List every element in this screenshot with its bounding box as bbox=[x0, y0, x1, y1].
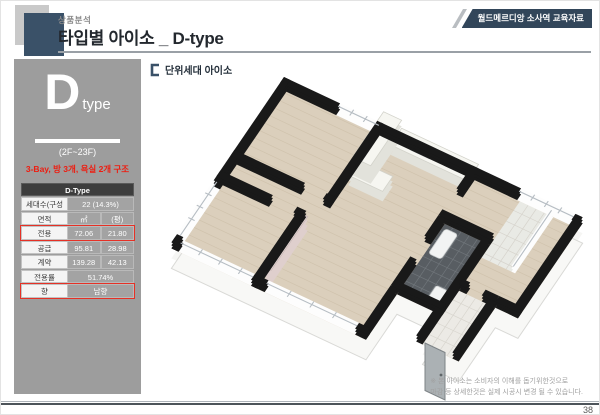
row-value: 남향 bbox=[68, 284, 134, 298]
type-word: type bbox=[82, 96, 110, 113]
table-row: 면적 ㎡ (평) bbox=[21, 212, 134, 226]
row-value: (평) bbox=[101, 212, 135, 226]
table-row: 세대수(구성비) 22 (14.3%) bbox=[21, 197, 134, 211]
unit-structure-note: 3-Bay, 방 3개, 욕실 2개 구조 bbox=[14, 163, 141, 175]
footer-rule-dark bbox=[1, 403, 599, 405]
unit-isometric-floor-plan bbox=[141, 59, 596, 406]
unit-info-table: D-Type 세대수(구성비) 22 (14.3%) 면적 ㎡ (평) 전용 7… bbox=[21, 183, 134, 299]
row-value: 51.74% bbox=[68, 270, 134, 284]
type-letter: D bbox=[44, 64, 80, 120]
footer-rule-light bbox=[1, 401, 599, 402]
type-summary-panel: Dtype (2F~23F) 3-Bay, 방 3개, 욕실 2개 구조 D-T… bbox=[14, 59, 141, 394]
door-knob bbox=[440, 374, 443, 377]
table-row: 계약 139.28 42.13 bbox=[21, 255, 134, 269]
table-row: 공급 95.81 28.98 bbox=[21, 241, 134, 255]
row-value: 22 (14.3%) bbox=[68, 197, 134, 211]
row-label: 계약 bbox=[21, 255, 68, 269]
table-row-highlighted: 향 남향 bbox=[21, 284, 134, 298]
title-divider bbox=[58, 51, 591, 53]
disclaimer: ※ 본 아이소는 소비자의 이해를 돕기위한것으로 마감 등 상세한것은 실제 … bbox=[430, 377, 583, 398]
row-value: 21.80 bbox=[101, 226, 135, 240]
row-label: 향 bbox=[21, 284, 68, 298]
row-value: 95.81 bbox=[68, 241, 101, 255]
page-number: 38 bbox=[583, 405, 593, 415]
row-value: 42.13 bbox=[101, 255, 135, 269]
row-label: 세대수(구성비) bbox=[21, 197, 68, 211]
floor-range: (2F~23F) bbox=[14, 147, 141, 157]
disclaimer-line: 마감 등 상세한것은 실제 시공시 변경 될 수 있습니다. bbox=[430, 388, 583, 399]
row-label: 전용 bbox=[21, 226, 68, 240]
row-value: 72.06 bbox=[68, 226, 101, 240]
type-underline bbox=[35, 139, 120, 143]
row-value: ㎡ bbox=[68, 212, 101, 226]
row-value: 139.28 bbox=[68, 255, 101, 269]
page-title: 타입별 아이소 _ D-type bbox=[58, 24, 224, 49]
table-row-highlighted: 전용 72.06 21.80 bbox=[21, 226, 134, 240]
table-row: 전용률 51.74% bbox=[21, 270, 134, 284]
row-label: 면적 bbox=[21, 212, 68, 226]
slide: 상품분석 타입별 아이소 _ D-type 월드메르디앙 소사역 교육자료 Dt… bbox=[0, 0, 600, 415]
row-value: 28.98 bbox=[101, 241, 135, 255]
type-name: Dtype bbox=[14, 67, 141, 117]
row-label: 공급 bbox=[21, 241, 68, 255]
document-badge: 월드메르디앙 소사역 교육자료 bbox=[462, 9, 592, 28]
table-header: D-Type bbox=[21, 183, 134, 196]
row-label: 전용률 bbox=[21, 270, 68, 284]
disclaimer-line: ※ 본 아이소는 소비자의 이해를 돕기위한것으로 bbox=[430, 377, 583, 388]
